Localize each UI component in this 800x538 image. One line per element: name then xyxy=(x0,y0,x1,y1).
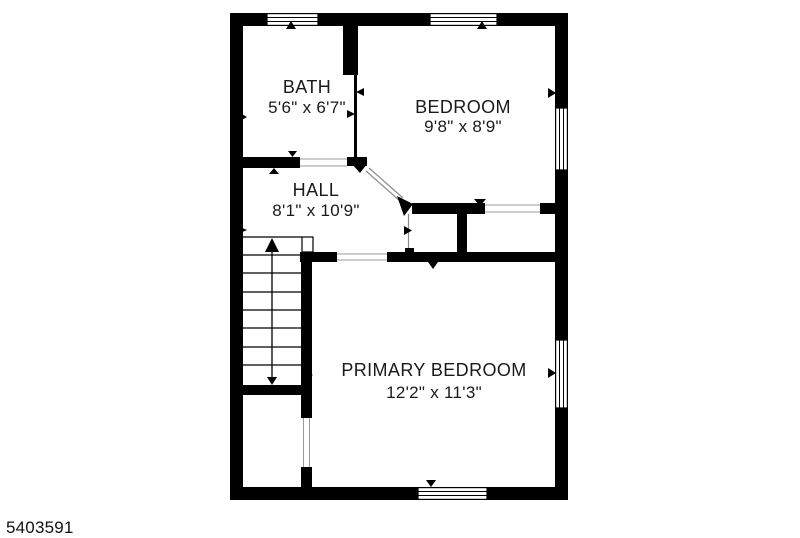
door-stop-icon xyxy=(352,164,367,173)
wall-bath-bottom xyxy=(243,157,300,168)
bedroom-door-leaf xyxy=(366,171,400,201)
window-marker-icon xyxy=(548,368,556,378)
floor-plan-page: BATH 5'6" x 6'7" BEDROOM 9'8" x 8'9" HAL… xyxy=(0,0,800,538)
wall-under-stairs-closet xyxy=(243,385,301,395)
primary-door-stop xyxy=(405,248,414,252)
door-leaves xyxy=(366,168,414,252)
wall-bath-divider xyxy=(343,26,358,75)
door-marker-icon xyxy=(269,168,279,174)
wall-bottom xyxy=(230,487,568,500)
stair-newel-post xyxy=(302,237,313,252)
window-bedroom-top xyxy=(430,14,497,26)
plan-id: 5403591 xyxy=(6,518,74,538)
wall-left xyxy=(230,13,243,500)
door-marker-icon xyxy=(347,110,355,118)
room-dims-bedroom: 9'8" x 8'9" xyxy=(424,117,502,136)
wall-right xyxy=(555,13,568,500)
window-bedroom-right xyxy=(556,108,568,170)
door-marker-icon xyxy=(240,113,247,121)
wall-closet-top-left xyxy=(412,203,485,214)
door-marker-icon xyxy=(240,227,247,233)
stair-up-arrow-icon xyxy=(265,238,279,252)
wall-stair-side-lower xyxy=(301,467,312,487)
door-marker-icon xyxy=(356,88,364,96)
wall-closet-top-right xyxy=(540,203,555,214)
wall-stair-side-upper xyxy=(301,252,312,418)
window-primary-bottom xyxy=(418,488,487,500)
floor-plan-drawing: BATH 5'6" x 6'7" BEDROOM 9'8" x 8'9" HAL… xyxy=(0,0,800,538)
bedroom-door-arrow-icon xyxy=(397,196,413,216)
room-label-bath: BATH xyxy=(283,77,331,97)
room-label-primary-bedroom: PRIMARY BEDROOM xyxy=(341,360,526,380)
room-dims-primary-bedroom: 12'2" x 11'3" xyxy=(386,383,482,402)
room-label-hall: HALL xyxy=(293,180,340,200)
door-marker-icon xyxy=(428,262,438,269)
stair-end-tick-icon xyxy=(267,377,277,385)
wall-closet-bottom xyxy=(387,252,555,262)
wall-bath-divider-door xyxy=(354,75,357,158)
window-marker-icon xyxy=(426,480,436,487)
door-marker-icon xyxy=(288,151,297,157)
room-dims-hall: 8'1" x 10'9" xyxy=(272,201,359,220)
room-label-bedroom: BEDROOM xyxy=(415,97,511,117)
bedroom-door-leaf xyxy=(369,168,403,198)
room-dims-bath: 5'6" x 6'7" xyxy=(268,98,346,117)
window-marker-icon xyxy=(548,88,556,98)
window-primary-right xyxy=(556,340,568,408)
